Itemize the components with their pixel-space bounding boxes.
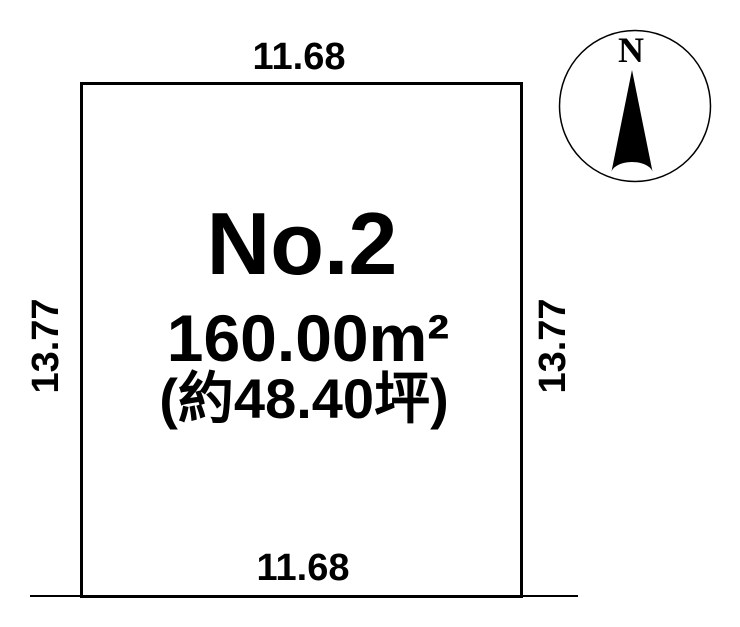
plot-area-m2: 160.00m² (167, 305, 450, 371)
boundary-line-left-extension (30, 595, 82, 597)
boundary-line-right-extension (522, 595, 578, 597)
land-plot-diagram: 11.68 11.68 13.77 13.77 No.2 160.00m² (約… (0, 0, 740, 627)
compass-north-label: N (618, 30, 644, 70)
plot-number-label: No.2 (207, 200, 398, 288)
dimension-left: 13.77 (27, 298, 65, 393)
dimension-bottom: 11.68 (257, 549, 350, 587)
dimension-top: 11.68 (253, 38, 346, 76)
north-compass: N (556, 26, 714, 186)
plot-area-tsubo: (約48.40坪) (159, 371, 448, 427)
dimension-right: 13.77 (534, 298, 572, 393)
